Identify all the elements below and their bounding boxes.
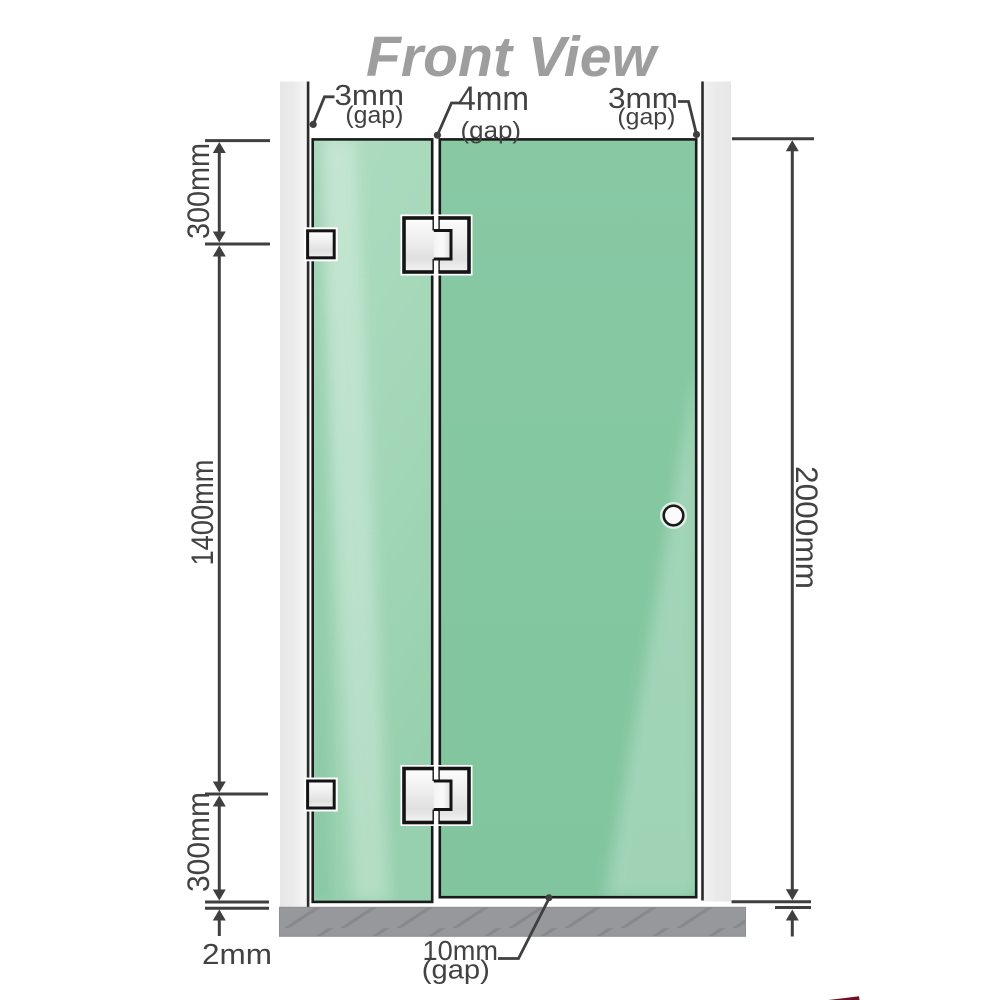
svg-text:300mm: 300mm	[180, 792, 216, 892]
svg-text:2mm: 2mm	[202, 939, 272, 971]
svg-text:300mm: 300mm	[180, 143, 216, 239]
svg-text:(gap): (gap)	[422, 957, 490, 985]
svg-text:2000mm: 2000mm	[789, 466, 825, 589]
svg-text:4mm: 4mm	[458, 80, 529, 118]
svg-text:1400mm: 1400mm	[184, 460, 220, 566]
svg-text:(gap): (gap)	[345, 102, 403, 129]
svg-text:(gap): (gap)	[617, 104, 675, 130]
svg-text:(gap): (gap)	[461, 118, 522, 145]
